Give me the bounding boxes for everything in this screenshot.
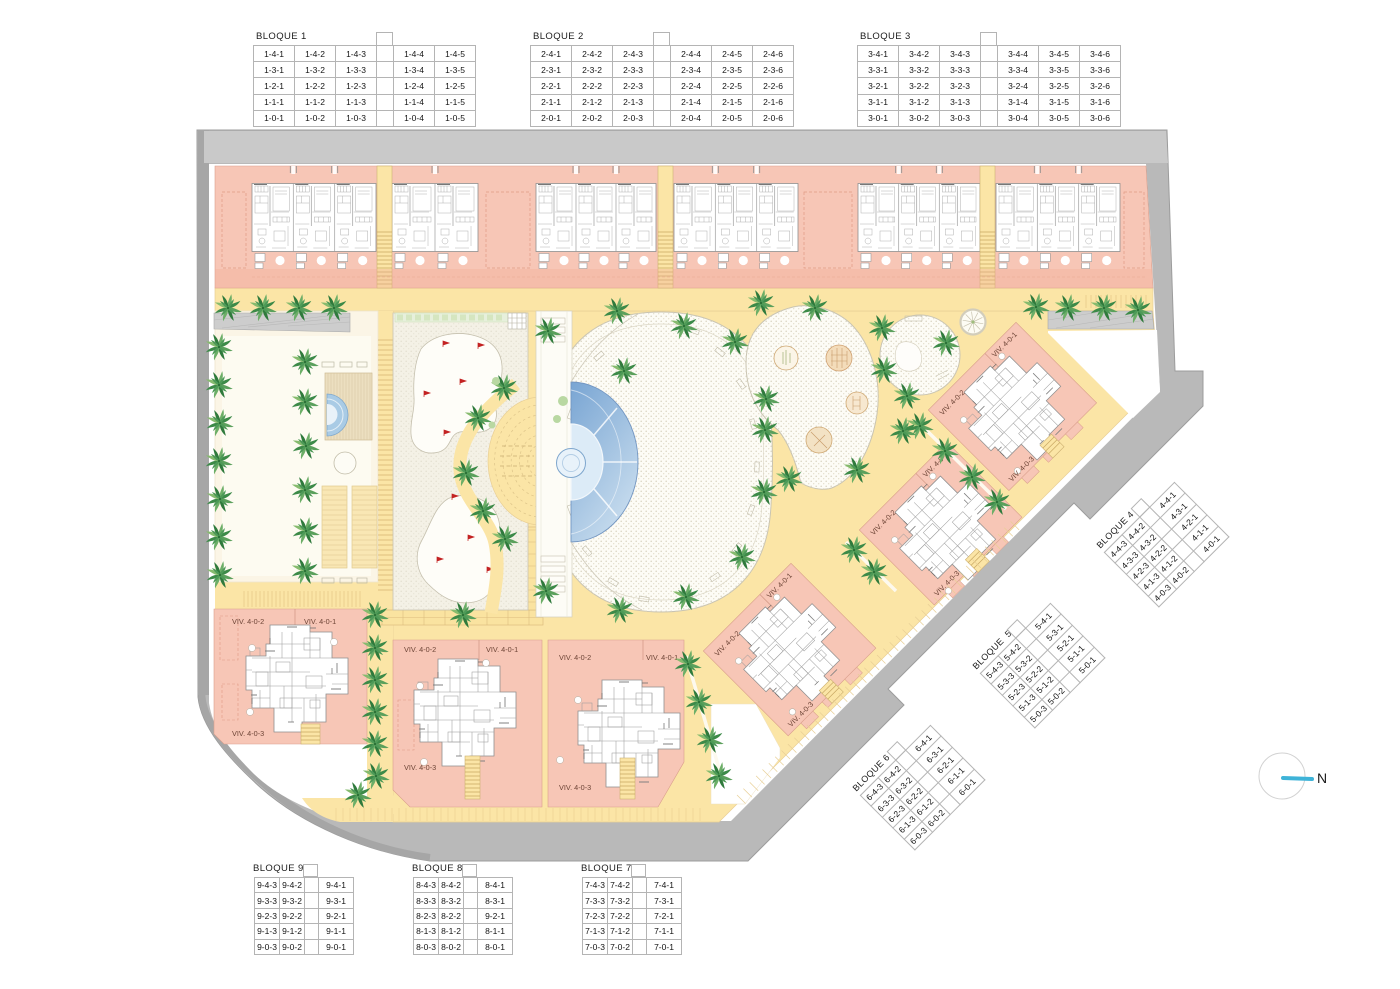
svg-text:VIV. 4-0-3: VIV. 4-0-3 [404, 763, 436, 772]
svg-text:VIV. 4-0-2: VIV. 4-0-2 [232, 617, 264, 626]
svg-text:N: N [1317, 770, 1327, 786]
svg-text:VIV. 4-0-2: VIV. 4-0-2 [559, 653, 591, 662]
svg-text:VIV. 4-0-3: VIV. 4-0-3 [559, 783, 591, 792]
svg-text:VIV. 4-0-1: VIV. 4-0-1 [486, 645, 518, 654]
svg-text:VIV. 4-0-1: VIV. 4-0-1 [304, 617, 336, 626]
svg-text:VIV. 4-0-2: VIV. 4-0-2 [404, 645, 436, 654]
svg-text:VIV. 4-0-3: VIV. 4-0-3 [232, 729, 264, 738]
svg-text:VIV. 4-0-1: VIV. 4-0-1 [646, 653, 678, 662]
